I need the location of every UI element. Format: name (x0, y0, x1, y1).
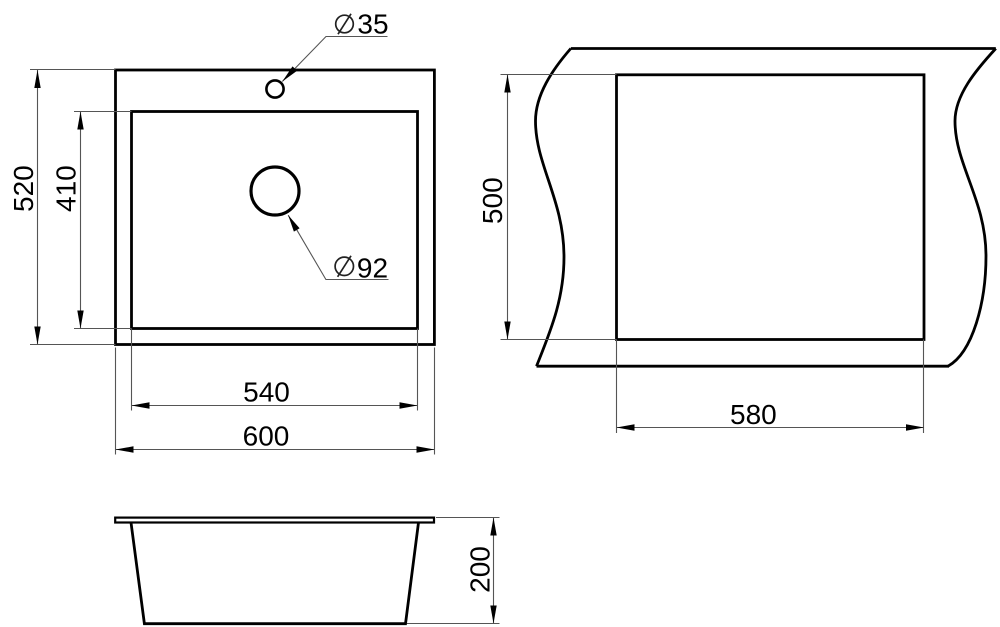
svg-text:200: 200 (464, 546, 495, 593)
svg-text:410: 410 (51, 165, 82, 212)
svg-text:520: 520 (8, 165, 39, 212)
svg-text:580: 580 (730, 399, 777, 430)
svg-text:600: 600 (243, 421, 290, 452)
svg-text:35: 35 (357, 9, 388, 40)
svg-text:92: 92 (357, 253, 388, 284)
svg-text:500: 500 (477, 177, 508, 224)
svg-text:540: 540 (243, 376, 290, 407)
